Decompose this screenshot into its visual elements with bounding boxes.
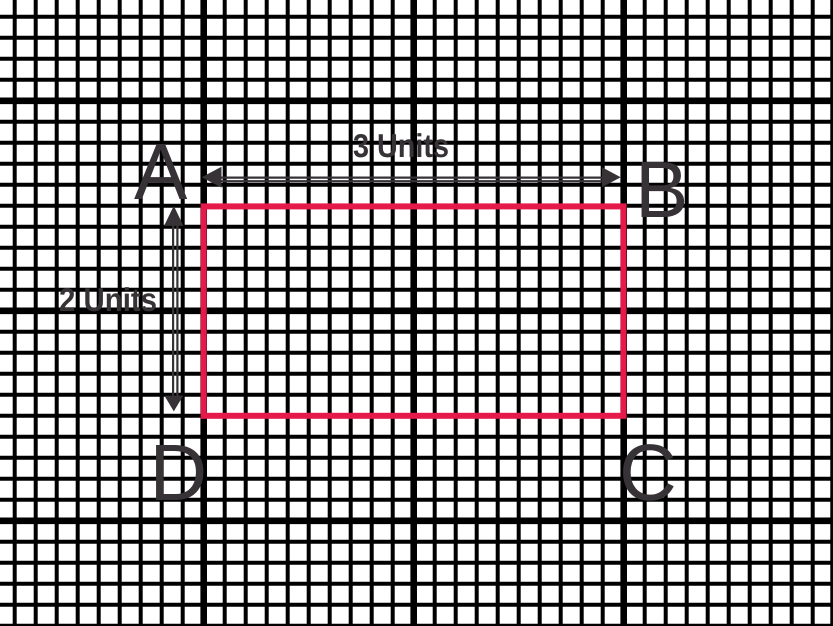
svg-text:2 Units: 2 Units xyxy=(59,281,157,318)
svg-text:B: B xyxy=(635,145,688,234)
svg-text:A: A xyxy=(134,127,188,216)
svg-text:D: D xyxy=(150,428,208,517)
svg-text:3 Units: 3 Units xyxy=(353,127,449,164)
svg-text:C: C xyxy=(619,428,677,517)
